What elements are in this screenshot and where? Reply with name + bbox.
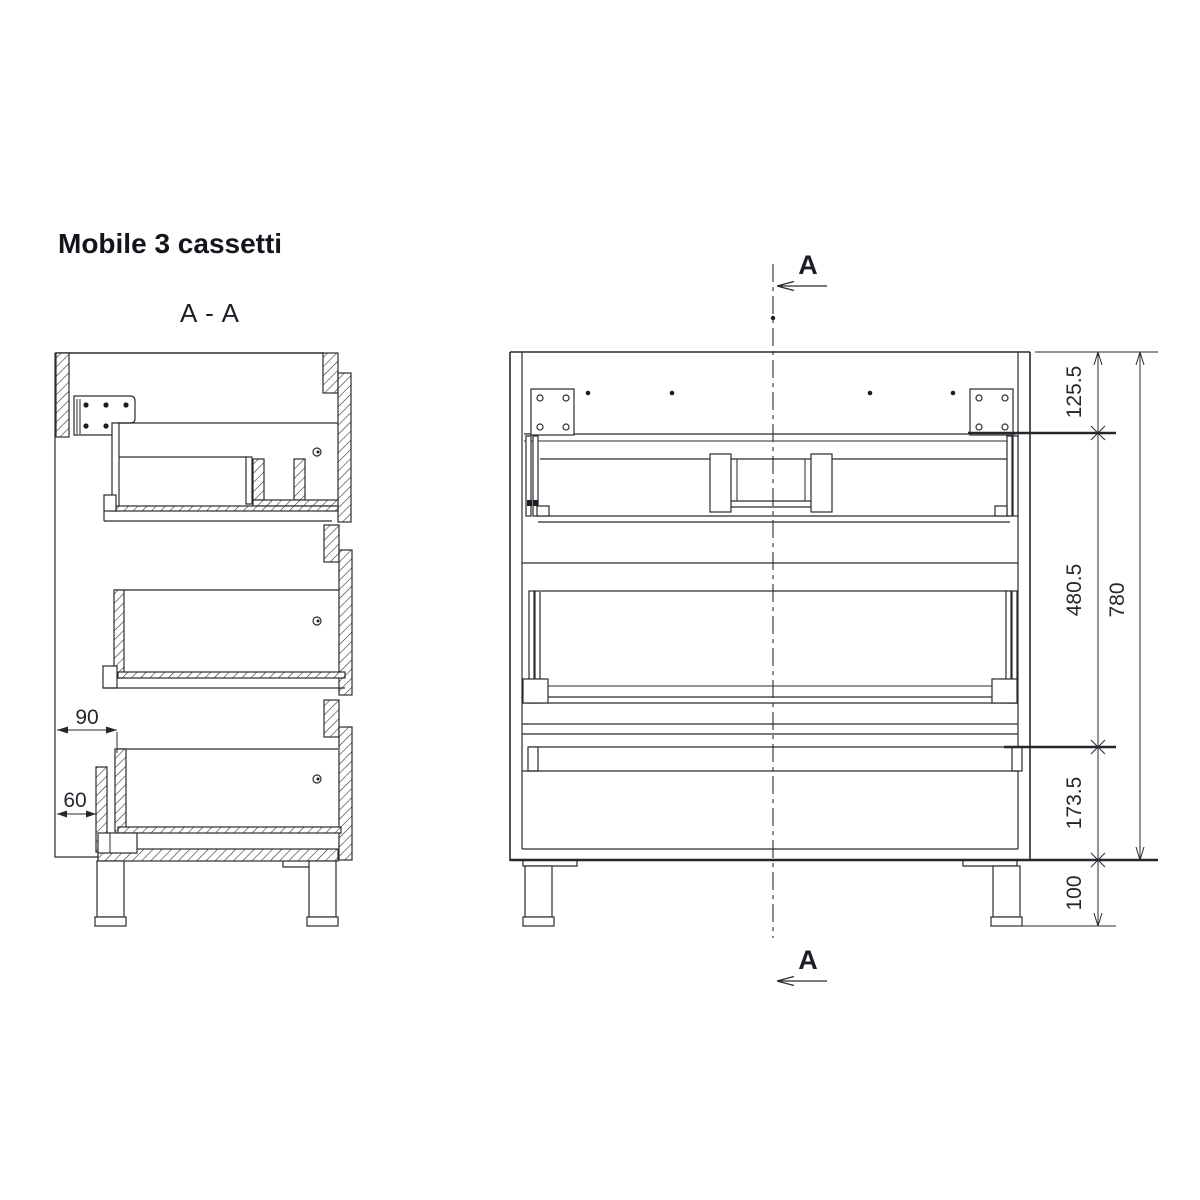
- drawer3-section: [96, 749, 341, 853]
- cut-line: A A: [771, 250, 827, 986]
- dimension-90: 90: [57, 706, 117, 753]
- technical-drawing: Mobile 3 cassetti A - A: [0, 0, 1200, 1200]
- dim-125-5-label: 125.5: [1063, 366, 1086, 419]
- section-view: 90 60: [55, 353, 352, 926]
- siphon-wall-left: [253, 459, 264, 500]
- leg: [97, 861, 124, 917]
- leg: [525, 866, 552, 917]
- front-drawer2: [522, 591, 1018, 703]
- dim-90-label: 90: [75, 706, 98, 729]
- dim-60-label: 60: [63, 789, 86, 812]
- siphon-wall-right: [294, 459, 305, 500]
- dimension-780: 780: [1106, 352, 1144, 860]
- back-panel-section: [56, 353, 69, 437]
- drawer2-bottom: [118, 672, 345, 678]
- drawer1-front-section: [338, 373, 351, 522]
- page-title: Mobile 3 cassetti: [58, 228, 282, 259]
- siphon-post-left: [710, 454, 731, 512]
- section-view-label: A - A: [180, 298, 240, 328]
- rail2-section: [324, 525, 339, 562]
- drawer2-section: [103, 590, 345, 688]
- wall-bracket: [74, 396, 135, 435]
- drawer3-bottom: [118, 827, 341, 833]
- dimension-60: 60: [57, 789, 96, 818]
- leg: [309, 861, 336, 917]
- extension-lines: [510, 352, 1158, 926]
- section-legs: [95, 861, 338, 926]
- front-view: A A 125.5 480.5 173.5 100: [510, 250, 1158, 986]
- siphon-bottom: [253, 500, 338, 506]
- dim-100-label: 100: [1063, 875, 1086, 910]
- drawer3-front-section: [339, 727, 352, 860]
- cut-label-bottom: A: [798, 945, 818, 975]
- drawer1-section: [104, 423, 338, 521]
- dim-780-label: 780: [1106, 582, 1129, 617]
- leg: [993, 866, 1020, 917]
- front-mounting-plates: [531, 389, 1013, 435]
- dim-173-5-label: 173.5: [1063, 777, 1086, 830]
- front-divider-2: [522, 724, 1018, 734]
- drawing-page: Mobile 3 cassetti A - A: [0, 0, 1200, 1200]
- dim-480-5-label: 480.5: [1063, 564, 1086, 617]
- front-drawer1: [526, 436, 1018, 522]
- front-top-rail-section: [323, 353, 338, 393]
- drawer1-bottom: [116, 506, 338, 511]
- front-cabinet-shell: [510, 352, 1030, 866]
- front-drawer3: [522, 747, 1022, 771]
- rail3-section: [324, 700, 339, 737]
- dimension-chain: 125.5 480.5 173.5 100: [1063, 352, 1105, 926]
- siphon-post-right: [811, 454, 832, 512]
- cut-label-top: A: [798, 250, 818, 280]
